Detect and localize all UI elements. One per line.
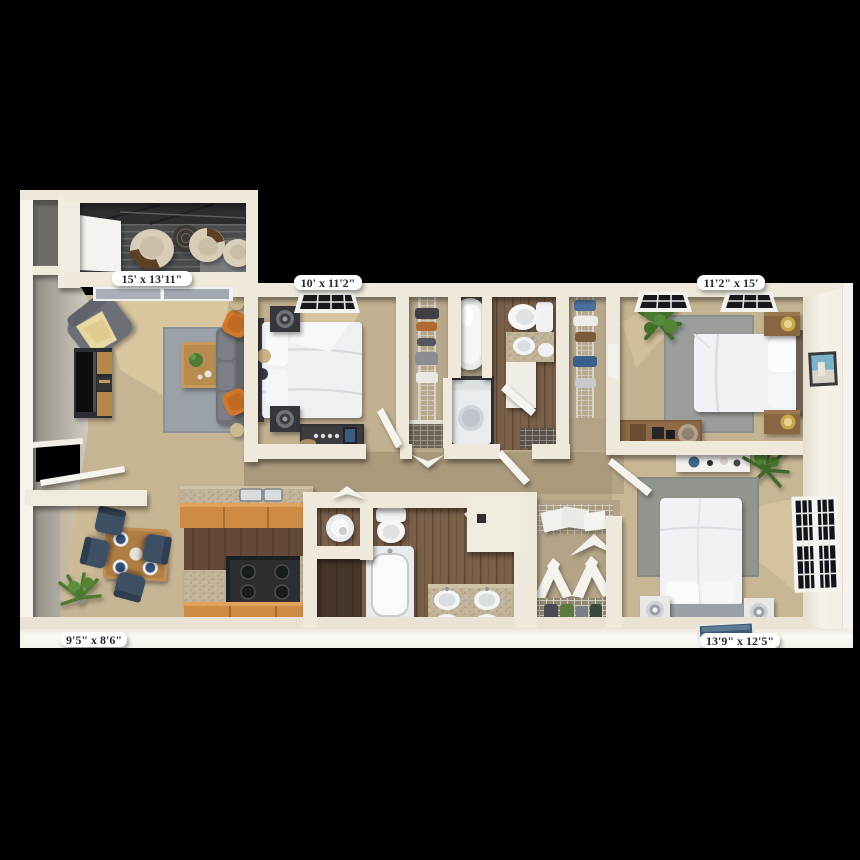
svg-text:10' x 11'2": 10' x 11'2"	[301, 276, 356, 290]
svg-text:9'5" x 8'6": 9'5" x 8'6"	[66, 633, 122, 647]
svg-text:11'2" x 15': 11'2" x 15'	[704, 276, 759, 290]
svg-text:13'9" x 12'5": 13'9" x 12'5"	[706, 634, 774, 648]
svg-text:15' x 13'11": 15' x 13'11"	[122, 272, 183, 286]
